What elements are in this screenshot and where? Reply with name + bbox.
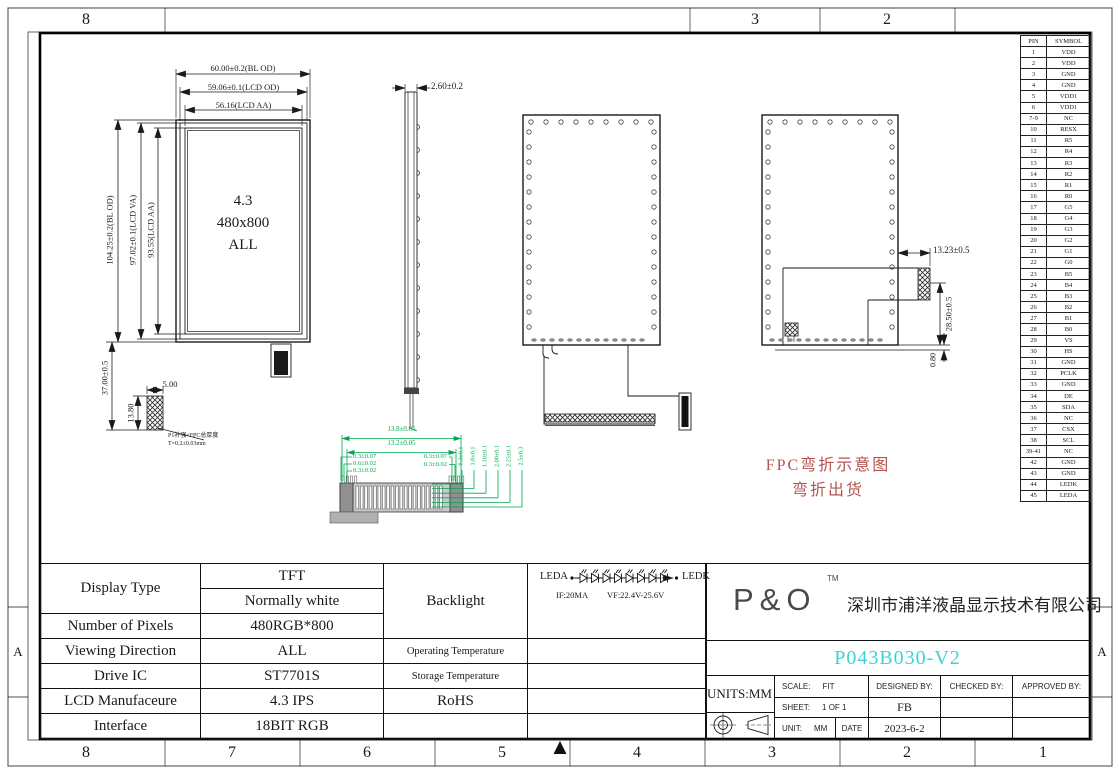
pin-row: 12R4 bbox=[1021, 146, 1091, 157]
pin-cell: R3 bbox=[1047, 158, 1091, 169]
dim-connector-stack: 2.25±0.1 bbox=[507, 445, 514, 467]
pin-row: 36NC bbox=[1021, 413, 1091, 424]
dim-fold-height: 28.50±0.5 bbox=[944, 297, 953, 331]
dim-aa-width: 56.16(LCD AA) bbox=[185, 101, 302, 110]
pin-cell: 20 bbox=[1021, 235, 1047, 246]
pin-cell: 10 bbox=[1021, 124, 1047, 135]
projection-cell bbox=[705, 713, 775, 739]
drawing-sheet: 8 3 2 8 7 6 5 4 3 2 1 A A 60.00±0.2(BL O… bbox=[0, 0, 1120, 775]
dim-va-height: 97.02±0.1(LCD VA) bbox=[128, 195, 137, 265]
unit-label: UNIT: bbox=[782, 724, 802, 733]
company-name: 深圳市浦洋液晶显示技术有限公司 bbox=[847, 591, 1102, 616]
pin-row: 33GND bbox=[1021, 379, 1091, 390]
pin-cell: 35 bbox=[1021, 402, 1047, 413]
border-bottom-label: 4 bbox=[617, 744, 657, 762]
pin-cell: 4 bbox=[1021, 80, 1047, 91]
pin-cell: 24 bbox=[1021, 280, 1047, 291]
pin-cell: 5 bbox=[1021, 91, 1047, 102]
pin-cell: HS bbox=[1047, 346, 1091, 357]
border-bottom-label: 2 bbox=[887, 744, 927, 762]
pin-cell: G0 bbox=[1047, 257, 1091, 268]
company-cell: P&O TM 深圳市浦洋液晶显示技术有限公司 bbox=[705, 564, 1090, 641]
side-view bbox=[392, 84, 430, 431]
pin-cell: GND bbox=[1047, 457, 1091, 468]
pin-cell: R0 bbox=[1047, 191, 1091, 202]
pin-cell: 39-41 bbox=[1021, 446, 1047, 457]
pin-cell: 31 bbox=[1021, 357, 1047, 368]
pin-row: 26B2 bbox=[1021, 302, 1091, 313]
units-cell: UNITS:MM bbox=[705, 676, 775, 713]
designed-by-label: DESIGNED BY: bbox=[876, 682, 932, 691]
spec-empty-cell bbox=[528, 714, 706, 739]
dim-lcd-width: 59.06±0.1(LCD OD) bbox=[180, 83, 307, 92]
pin-cell: 27 bbox=[1021, 313, 1047, 324]
pin-row: 23B5 bbox=[1021, 268, 1091, 279]
border-row-label: A bbox=[1094, 645, 1110, 659]
date-value: 2023-6-2 bbox=[884, 723, 924, 735]
pin-cell: GND bbox=[1047, 468, 1091, 479]
pin-row: 42GND bbox=[1021, 457, 1091, 468]
pin-cell: 23 bbox=[1021, 268, 1047, 279]
part-number: P043B030-V2 bbox=[834, 647, 961, 670]
pin-cell: 38 bbox=[1021, 435, 1047, 446]
pin-cell: GND bbox=[1047, 379, 1091, 390]
dim-connector-stack: 2.00±0.1 bbox=[495, 445, 502, 467]
title-block: P&O TM 深圳市浦洋液晶显示技术有限公司 P043B030-V2 UNITS… bbox=[705, 563, 1091, 740]
pin-cell: 45 bbox=[1021, 490, 1047, 501]
unit-cell: UNIT: MM bbox=[775, 718, 835, 739]
border-top-label: 3 bbox=[735, 11, 775, 29]
panel-bottom-pads bbox=[531, 338, 883, 342]
pin-row: 45LEDA bbox=[1021, 490, 1091, 501]
pin-cell: 14 bbox=[1021, 169, 1047, 180]
pin-cell: G1 bbox=[1047, 246, 1091, 257]
fpc-bend-note: 弯折出货 bbox=[738, 482, 918, 500]
pin-cell: 6 bbox=[1021, 102, 1047, 113]
checked-by-label: CHECKED BY: bbox=[950, 682, 1004, 691]
pin-cell: B4 bbox=[1047, 280, 1091, 291]
pin-cell: VDD1 bbox=[1047, 102, 1091, 113]
pin-cell: 3 bbox=[1021, 69, 1047, 80]
spec-label: Operating Temperature bbox=[384, 639, 528, 664]
dim-connector-stack: 0.3±0.1 bbox=[459, 447, 466, 466]
part-number-cell: P043B030-V2 bbox=[705, 641, 1090, 676]
pin-cell: 28 bbox=[1021, 324, 1047, 335]
pin-row: 3GND bbox=[1021, 69, 1091, 80]
checked-by-cell: CHECKED BY: bbox=[940, 676, 1012, 698]
pin-cell: NC bbox=[1047, 446, 1091, 457]
pin-cell: SDA bbox=[1047, 402, 1091, 413]
pin-cell: 15 bbox=[1021, 180, 1047, 191]
pin-cell: 32 bbox=[1021, 368, 1047, 379]
pin-cell: G4 bbox=[1047, 213, 1091, 224]
spec-empty-cell bbox=[528, 664, 706, 689]
pin-cell: 36 bbox=[1021, 413, 1047, 424]
pin-row: 35SDA bbox=[1021, 402, 1091, 413]
border-bottom-label: 5 bbox=[482, 744, 522, 762]
panel-edge-dots bbox=[527, 120, 894, 329]
pin-table-header: PIN SYMBOL bbox=[1021, 36, 1091, 47]
pin-cell: RESX bbox=[1047, 124, 1091, 135]
pin-cell: 22 bbox=[1021, 257, 1047, 268]
spec-label: Display Type bbox=[41, 564, 201, 614]
pin-row: 44LEDK bbox=[1021, 479, 1091, 490]
pin-row: 20G2 bbox=[1021, 235, 1091, 246]
pin-cell: 1 bbox=[1021, 47, 1047, 58]
pin-cell: G3 bbox=[1047, 224, 1091, 235]
spec-value: 4.3 IPS bbox=[201, 689, 384, 714]
pin-cell: 18 bbox=[1021, 213, 1047, 224]
pin-cell: NC bbox=[1047, 113, 1091, 124]
pin-row: 15R1 bbox=[1021, 180, 1091, 191]
pin-cell: CSX bbox=[1047, 424, 1091, 435]
pin-cell: B3 bbox=[1047, 291, 1091, 302]
spec-label: Drive IC bbox=[41, 664, 201, 689]
pin-cell: R2 bbox=[1047, 169, 1091, 180]
pin-cell: 2 bbox=[1021, 58, 1047, 69]
pin-cell: 29 bbox=[1021, 335, 1047, 346]
border-bottom-label: 8 bbox=[66, 744, 106, 762]
pin-row: 18G4 bbox=[1021, 213, 1091, 224]
approved-by-cell: APPROVED BY: bbox=[1012, 676, 1090, 698]
spec-value: 480RGB*800 bbox=[201, 614, 384, 639]
pin-cell: R5 bbox=[1047, 135, 1091, 146]
pin-cell: 16 bbox=[1021, 191, 1047, 202]
spec-empty-cell bbox=[528, 689, 706, 714]
units-label: UNITS:MM bbox=[707, 686, 772, 702]
spec-label: LCD Manufaceure bbox=[41, 689, 201, 714]
pin-row: 30HS bbox=[1021, 346, 1091, 357]
pin-cell: 30 bbox=[1021, 346, 1047, 357]
border-bottom-label: 7 bbox=[212, 744, 252, 762]
company-logo: P&O bbox=[733, 582, 816, 618]
fpc-unfolded-view bbox=[523, 115, 691, 430]
dim-fpc-length: 37.00±0.5 bbox=[100, 361, 109, 395]
pin-cell: LEDK bbox=[1047, 479, 1091, 490]
pin-cell: 17 bbox=[1021, 202, 1047, 213]
pin-cell: DE bbox=[1047, 391, 1091, 402]
dim-fold-gap: 0.80 bbox=[930, 353, 939, 367]
empty-cell bbox=[1012, 718, 1090, 739]
pin-row: 11R5 bbox=[1021, 135, 1091, 146]
panel-size-label: 4.3 bbox=[176, 193, 310, 210]
spec-empty-cell bbox=[528, 639, 706, 664]
spec-value: TFT bbox=[201, 564, 384, 589]
fpc-bend-note: FPC弯折示意图 bbox=[738, 457, 918, 475]
pin-row: 22G0 bbox=[1021, 257, 1091, 268]
center-mark-triangle bbox=[554, 741, 567, 754]
designer-cell: FB bbox=[868, 698, 940, 718]
pin-cell: LEDA bbox=[1047, 490, 1091, 501]
pin-row: 34DE bbox=[1021, 391, 1091, 402]
scale-label: SCALE: bbox=[782, 682, 810, 691]
pin-cell: 12 bbox=[1021, 146, 1047, 157]
pin-cell: VDD bbox=[1047, 47, 1091, 58]
scale-value: FIT bbox=[822, 682, 834, 691]
checked-value-cell bbox=[940, 698, 1012, 718]
dim-aa-height: 93.55(LCD AA) bbox=[146, 202, 155, 258]
pin-row: 14R2 bbox=[1021, 169, 1091, 180]
pin-cell: VDD bbox=[1047, 58, 1091, 69]
pin-row: 27B1 bbox=[1021, 313, 1091, 324]
spec-label: Interface bbox=[41, 714, 201, 739]
pin-row: 19G3 bbox=[1021, 224, 1091, 235]
pin-cell: B1 bbox=[1047, 313, 1091, 324]
pin-row: 4GND bbox=[1021, 80, 1091, 91]
scale-cell: SCALE: FIT bbox=[775, 676, 868, 698]
date-label-cell: DATE bbox=[835, 718, 868, 739]
border-top-label: 2 bbox=[867, 11, 907, 29]
pin-cell: 33 bbox=[1021, 379, 1047, 390]
pin-row: 10RESX bbox=[1021, 124, 1091, 135]
pin-cell: R4 bbox=[1047, 146, 1091, 157]
fpc-thickness-note: P1补强+FPC总厚度 bbox=[168, 433, 218, 440]
pin-cell: 13 bbox=[1021, 158, 1047, 169]
dim-connector-left: 0.3±0.02 bbox=[353, 467, 376, 474]
pin-cell: VDD1 bbox=[1047, 91, 1091, 102]
pin-cell: 43 bbox=[1021, 468, 1047, 479]
fpc-thickness-note: T=0.2±0.03mm bbox=[168, 441, 206, 448]
pin-row: 32PCLK bbox=[1021, 368, 1091, 379]
symbol-column-header: SYMBOL bbox=[1047, 36, 1091, 47]
designer-initials: FB bbox=[897, 700, 912, 715]
spec-table: Display Type Number of Pixels Viewing Di… bbox=[40, 563, 707, 740]
pin-cell: B5 bbox=[1047, 268, 1091, 279]
pin-row: 38SCL bbox=[1021, 435, 1091, 446]
pin-row: 37CSX bbox=[1021, 424, 1091, 435]
pin-row: 5VDD1 bbox=[1021, 91, 1091, 102]
pin-cell: 34 bbox=[1021, 391, 1047, 402]
sheet-value: 1 OF 1 bbox=[822, 703, 846, 712]
led-circuit-cell bbox=[528, 564, 706, 639]
pin-row: 6VDD1 bbox=[1021, 102, 1091, 113]
pin-cell: 19 bbox=[1021, 224, 1047, 235]
pin-cell: GND bbox=[1047, 69, 1091, 80]
fpc-folded-view bbox=[762, 115, 950, 362]
pin-cell: 37 bbox=[1021, 424, 1047, 435]
spec-value: ALL bbox=[201, 639, 384, 664]
empty-cell bbox=[940, 718, 1012, 739]
pin-cell: R1 bbox=[1047, 180, 1091, 191]
pin-row: 7-9NC bbox=[1021, 113, 1091, 124]
dim-stiffener-height: 13.80 bbox=[126, 403, 135, 422]
dim-thickness: 2.60±0.2 bbox=[431, 82, 463, 92]
trademark-mark: TM bbox=[827, 574, 839, 583]
dim-connector-stack: 2.5±0.3 bbox=[519, 447, 526, 466]
pin-cell: SCL bbox=[1047, 435, 1091, 446]
pin-row: 24B4 bbox=[1021, 280, 1091, 291]
border-bottom-label: 6 bbox=[347, 744, 387, 762]
dim-fpc-offset: 13.23±0.5 bbox=[933, 246, 969, 256]
pin-cell: 7-9 bbox=[1021, 113, 1047, 124]
dim-connector-stack: 1.10±0.1 bbox=[483, 445, 490, 467]
panel-viewing-label: ALL bbox=[176, 237, 310, 254]
border-bottom-label: 3 bbox=[752, 744, 792, 762]
pin-row: 31GND bbox=[1021, 357, 1091, 368]
dim-connector-outer: 13.8±0.05 bbox=[342, 426, 461, 434]
border-bottom-label: 1 bbox=[1023, 744, 1063, 762]
pin-cell: 44 bbox=[1021, 479, 1047, 490]
approved-value-cell bbox=[1012, 698, 1090, 718]
pin-cell: G2 bbox=[1047, 235, 1091, 246]
pin-cell: B0 bbox=[1047, 324, 1091, 335]
dim-connector-right: 0.3±0.02 bbox=[413, 461, 447, 468]
pin-cell: 42 bbox=[1021, 457, 1047, 468]
border-row-label: A bbox=[10, 645, 26, 659]
dim-bl-width: 60.00±0.2(BL OD) bbox=[176, 64, 310, 73]
pin-row: 43GND bbox=[1021, 468, 1091, 479]
pin-row: 17G5 bbox=[1021, 202, 1091, 213]
pin-row: 21G1 bbox=[1021, 246, 1091, 257]
spec-label: Viewing Direction bbox=[41, 639, 201, 664]
pin-cell: 26 bbox=[1021, 302, 1047, 313]
pin-cell: GND bbox=[1047, 357, 1091, 368]
pin-cell: GND bbox=[1047, 80, 1091, 91]
border-top-label: 8 bbox=[66, 11, 106, 29]
spec-empty-cell bbox=[384, 714, 528, 739]
pin-row: 2VDD bbox=[1021, 58, 1091, 69]
pin-cell: 11 bbox=[1021, 135, 1047, 146]
pin-row: 29VS bbox=[1021, 335, 1091, 346]
spec-value: Normally white bbox=[201, 589, 384, 614]
spec-value: ST7701S bbox=[201, 664, 384, 689]
spec-label: RoHS bbox=[384, 689, 528, 714]
spec-label: Storage Temperature bbox=[384, 664, 528, 689]
pin-cell: G5 bbox=[1047, 202, 1091, 213]
pin-row: 16R0 bbox=[1021, 191, 1091, 202]
pin-row: 39-41NC bbox=[1021, 446, 1091, 457]
date-value-cell: 2023-6-2 bbox=[868, 718, 940, 739]
pin-cell: 21 bbox=[1021, 246, 1047, 257]
pin-row: 1VDD bbox=[1021, 47, 1091, 58]
pin-cell: VS bbox=[1047, 335, 1091, 346]
spec-label: Backlight bbox=[384, 564, 528, 639]
pin-row: 25B3 bbox=[1021, 291, 1091, 302]
dim-connector-stack: 1.0±0.1 bbox=[471, 447, 478, 466]
pin-row: 13R3 bbox=[1021, 158, 1091, 169]
pin-row: 28B0 bbox=[1021, 324, 1091, 335]
pin-table: PIN SYMBOL 1VDD2VDD3GND4GND5VDD16VDD17-9… bbox=[1020, 35, 1091, 502]
pin-cell: B2 bbox=[1047, 302, 1091, 313]
pin-column-header: PIN bbox=[1021, 36, 1047, 47]
sheet-cell: SHEET: 1 OF 1 bbox=[775, 698, 868, 718]
approved-by-label: APPROVED BY: bbox=[1022, 682, 1081, 691]
date-label: DATE bbox=[842, 724, 863, 733]
pin-cell: 25 bbox=[1021, 291, 1047, 302]
dim-connector-inner: 13.2±0.05 bbox=[347, 440, 456, 448]
pin-cell: NC bbox=[1047, 413, 1091, 424]
spec-label: Number of Pixels bbox=[41, 614, 201, 639]
designed-by-cell: DESIGNED BY: bbox=[868, 676, 940, 698]
pin-cell: PCLK bbox=[1047, 368, 1091, 379]
unit-value: MM bbox=[814, 724, 827, 733]
spec-value: 18BIT RGB bbox=[201, 714, 384, 739]
dim-bl-height: 104.25±0.2(BL OD) bbox=[105, 195, 114, 264]
panel-resolution-label: 480x800 bbox=[176, 215, 310, 232]
sheet-label: SHEET: bbox=[782, 703, 810, 712]
dim-connector-right: 0.3±0.07 bbox=[413, 453, 447, 460]
dim-stiffener-width: 5.00 bbox=[156, 380, 184, 389]
